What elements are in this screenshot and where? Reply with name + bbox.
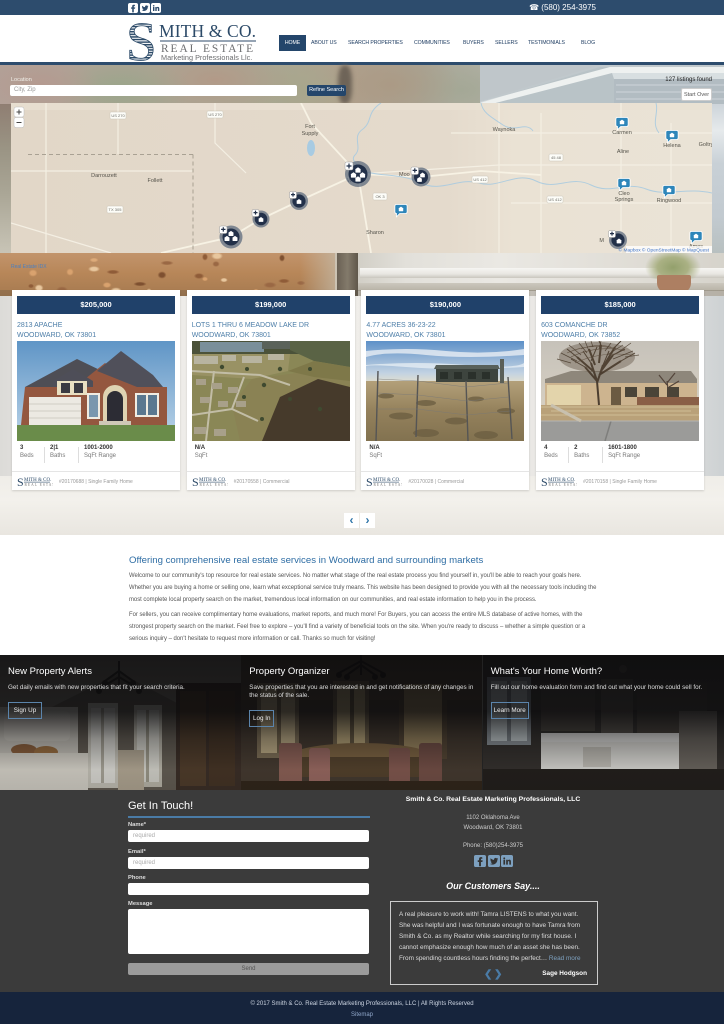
svg-text:Waynoka: Waynoka <box>493 127 517 133</box>
svg-text:US 412: US 412 <box>473 177 487 182</box>
svg-text:OK 3: OK 3 <box>375 194 385 199</box>
svg-text:Helena: Helena <box>663 143 681 149</box>
svg-text:Ringwood: Ringwood <box>657 198 681 204</box>
svg-text:Fort: Fort <box>305 124 315 130</box>
svg-text:US 270: US 270 <box>208 112 222 117</box>
svg-text:Aline: Aline <box>617 149 629 155</box>
svg-text:TX 305: TX 305 <box>109 207 123 212</box>
svg-text:Springs: Springs <box>615 197 634 203</box>
svg-text:US 270: US 270 <box>111 113 125 118</box>
svg-text:MITH & CO.: MITH & CO. <box>159 21 256 41</box>
svg-text:Supply: Supply <box>302 131 319 137</box>
svg-text:S: S <box>541 476 548 487</box>
svg-text:REAL ESTATE: REAL ESTATE <box>549 483 578 487</box>
svg-text:S: S <box>126 18 157 62</box>
svg-text:Goltry: Goltry <box>699 142 712 148</box>
svg-text:Marketing Professionals Llc.: Marketing Professionals Llc. <box>161 53 252 62</box>
svg-text:Darrouzett: Darrouzett <box>91 173 117 179</box>
svg-text:S: S <box>366 476 373 487</box>
svg-text:REAL ESTATE: REAL ESTATE <box>199 483 228 487</box>
svg-text:US 412: US 412 <box>548 197 562 202</box>
svg-text:REAL ESTATE: REAL ESTATE <box>374 483 403 487</box>
svg-text:S: S <box>192 476 199 487</box>
svg-text:Follett: Follett <box>148 178 163 184</box>
svg-text:S: S <box>17 476 24 487</box>
svg-text:Carmen: Carmen <box>612 130 632 136</box>
svg-text:REAL ESTATE: REAL ESTATE <box>25 483 54 487</box>
svg-text:Moo: Moo <box>399 172 410 178</box>
svg-text:M: M <box>599 238 604 244</box>
svg-text:Sharon: Sharon <box>366 230 384 236</box>
svg-text:45 48: 45 48 <box>551 155 562 160</box>
